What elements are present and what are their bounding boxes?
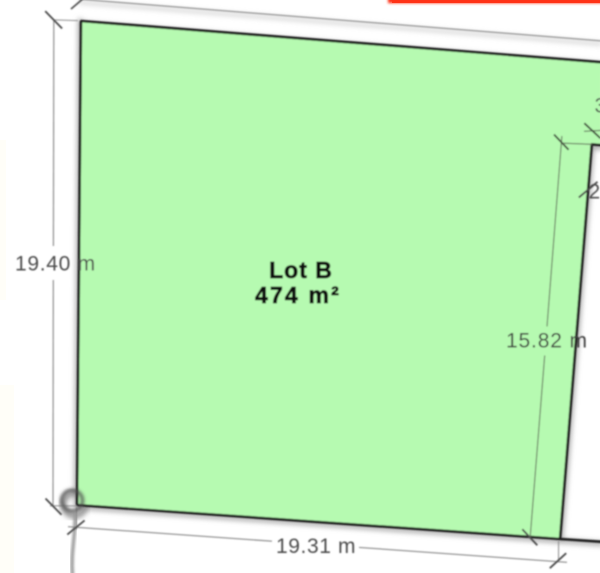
svg-text:Lot B: Lot B [269,257,333,283]
svg-text:19.40 m: 19.40 m [15,253,96,276]
svg-text:474 m²: 474 m² [255,282,341,308]
svg-text:3: 3 [595,95,600,118]
svg-text:19.31 m: 19.31 m [276,535,356,558]
svg-text:15.82 m: 15.82 m [506,330,588,353]
